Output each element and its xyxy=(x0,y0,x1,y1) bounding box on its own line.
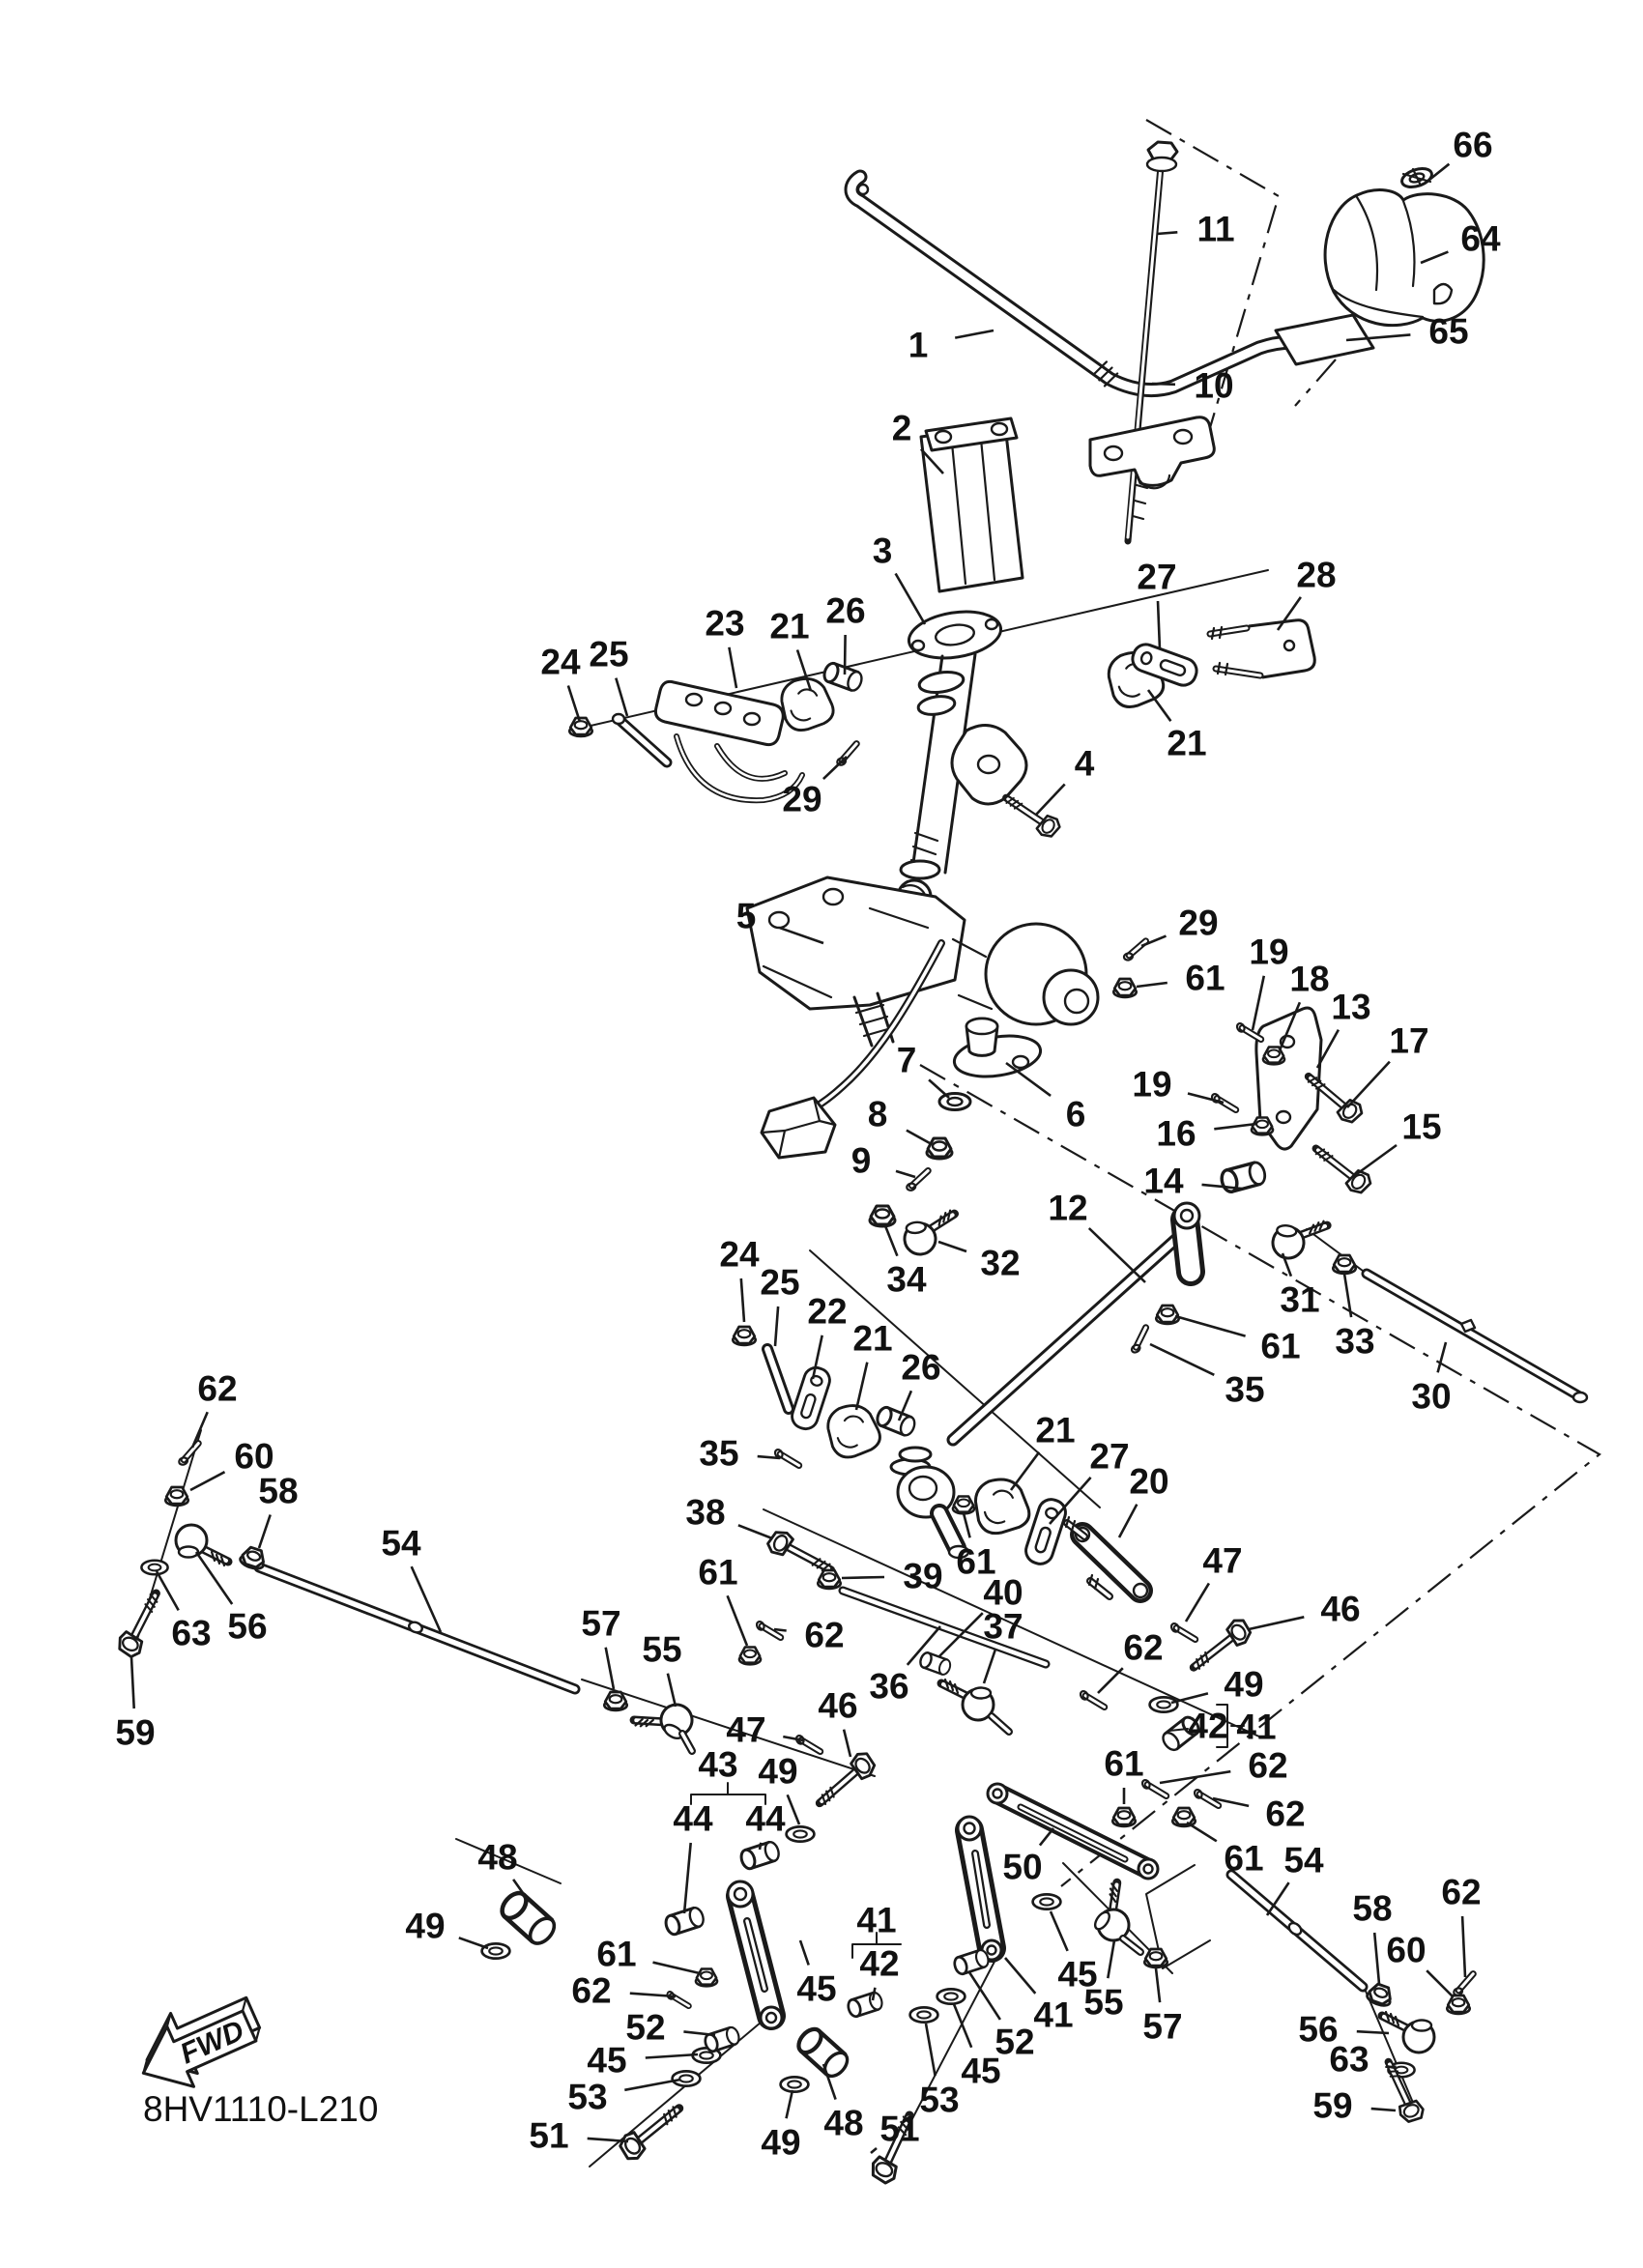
callout-31-39: 31 xyxy=(1280,1280,1319,1320)
leader-line-45 xyxy=(646,2054,698,2058)
callout-42-54: 42 xyxy=(859,1944,899,1984)
leader-line-19 xyxy=(1253,976,1264,1030)
callout-45-61: 45 xyxy=(796,1969,836,2009)
leader-line-26 xyxy=(845,635,846,675)
leader-line-63 xyxy=(157,1571,179,1610)
callout-61-99: 61 xyxy=(596,1935,636,1974)
steering-riser-and-stem xyxy=(833,418,1062,913)
fwd-arrow-icon: FWD xyxy=(126,1983,271,2104)
leader-line-49 xyxy=(788,1794,799,1824)
callout-33-41: 33 xyxy=(1335,1322,1374,1362)
leader-line-44 xyxy=(684,1843,691,1913)
callout-55-82: 55 xyxy=(1083,1983,1123,2023)
callout-61-96: 61 xyxy=(956,1542,995,1582)
leader-line-24 xyxy=(741,1278,744,1322)
callout-24-27: 24 xyxy=(540,643,581,682)
callout-12-11: 12 xyxy=(1048,1189,1087,1228)
callout-41-50: 41 xyxy=(1236,1708,1276,1747)
leader-line-10 xyxy=(1152,384,1175,385)
leader-line-44 xyxy=(760,1843,761,1850)
leader-line-25 xyxy=(616,678,627,716)
callout-2-1: 2 xyxy=(892,409,912,448)
callout-51-74: 51 xyxy=(879,2110,919,2149)
leader-line-34 xyxy=(884,1223,897,1256)
callout-5-4: 5 xyxy=(736,897,757,936)
callout-35-43: 35 xyxy=(699,1434,738,1474)
leader-line-38 xyxy=(738,1525,772,1538)
leader-line-11 xyxy=(1157,232,1177,234)
callout-22-25: 22 xyxy=(807,1292,847,1332)
leader-line-55 xyxy=(668,1674,676,1707)
callout-4-3: 4 xyxy=(1075,744,1095,784)
leader-line-62 xyxy=(774,1629,787,1631)
callout-56-83: 56 xyxy=(227,1607,267,1647)
callout-19-19: 19 xyxy=(1132,1065,1171,1105)
leader-line-23 xyxy=(729,647,736,688)
leader-line-61 xyxy=(1175,1316,1246,1336)
leader-line-53 xyxy=(624,2080,680,2090)
callout-41-52: 41 xyxy=(1033,1995,1073,2035)
callout-26-31: 26 xyxy=(825,591,865,631)
callout-54-79: 54 xyxy=(381,1524,421,1564)
callout-37-46: 37 xyxy=(983,1607,1023,1647)
callout-17-16: 17 xyxy=(1389,1021,1428,1061)
callout-32-40: 32 xyxy=(980,1244,1020,1283)
callout-61-94: 61 xyxy=(1260,1327,1300,1366)
callout-62-103: 62 xyxy=(1248,1746,1287,1786)
callout-62-102: 62 xyxy=(1123,1628,1163,1668)
callout-24-28: 24 xyxy=(719,1235,760,1275)
callout-59-89: 59 xyxy=(115,1713,155,1753)
handle-crown-parts xyxy=(1090,142,1484,541)
leader-line-8 xyxy=(907,1131,930,1143)
callout-44-57: 44 xyxy=(745,1799,786,1839)
callout-47-64: 47 xyxy=(726,1710,765,1750)
callout-15-14: 15 xyxy=(1401,1107,1441,1147)
leader-line-61 xyxy=(1187,1823,1217,1841)
callout-42-53: 42 xyxy=(1188,1707,1227,1746)
callout-27-34: 27 xyxy=(1089,1437,1129,1477)
callout-3-2: 3 xyxy=(873,531,893,571)
leader-line-49 xyxy=(459,1938,488,1948)
leader-line-27 xyxy=(1158,601,1160,649)
leader-line-16 xyxy=(1214,1124,1256,1129)
callout-7-6: 7 xyxy=(897,1041,917,1080)
callout-60-91: 60 xyxy=(234,1437,274,1477)
callout-21-22: 21 xyxy=(1167,724,1206,763)
callout-38-47: 38 xyxy=(685,1493,725,1533)
callout-19-18: 19 xyxy=(1249,933,1288,972)
callout-52-75: 52 xyxy=(625,2008,665,2048)
callout-39-48: 39 xyxy=(903,1557,942,1596)
leader-line-9 xyxy=(896,1171,915,1177)
callout-51-73: 51 xyxy=(529,2116,568,2156)
callout-21-23: 21 xyxy=(852,1319,892,1359)
callout-49-69: 49 xyxy=(405,1907,445,1946)
callout-9-8: 9 xyxy=(851,1141,872,1181)
callout-30-38: 30 xyxy=(1411,1377,1451,1417)
parts-diagram-canvas: FWD 8HV1110-L210 12345678910111213141516… xyxy=(0,0,1643,2268)
leader-line-51 xyxy=(871,2148,877,2153)
callout-57-85: 57 xyxy=(581,1604,620,1644)
leader-line-57 xyxy=(606,1648,614,1689)
callout-29-37: 29 xyxy=(1178,904,1218,943)
callout-60-92: 60 xyxy=(1386,1931,1426,1970)
leader-line-49 xyxy=(787,2090,793,2118)
callout-61-97: 61 xyxy=(1104,1744,1143,1784)
callout-41-51: 41 xyxy=(856,1901,896,1940)
leader-line-52 xyxy=(683,2031,715,2035)
leader-line-3 xyxy=(896,574,925,625)
callout-48-67: 48 xyxy=(823,2104,863,2143)
callout-53-78: 53 xyxy=(919,2081,959,2120)
callout-47-65: 47 xyxy=(1202,1541,1242,1581)
callout-46-63: 46 xyxy=(1320,1590,1360,1629)
leader-line-46 xyxy=(1249,1617,1304,1629)
callout-53-77: 53 xyxy=(567,2078,607,2117)
leader-line-61 xyxy=(1137,983,1167,987)
bracket-group xyxy=(1211,1008,1374,1197)
callout-48-66: 48 xyxy=(477,1838,517,1878)
leader-line-55 xyxy=(1108,1940,1114,1978)
callout-1-0: 1 xyxy=(908,326,929,365)
callout-58-87: 58 xyxy=(258,1472,298,1511)
leader-line-46 xyxy=(844,1730,850,1757)
callout-62-106: 62 xyxy=(1441,1873,1481,1912)
callout-61-93: 61 xyxy=(1185,959,1225,998)
callout-28-35: 28 xyxy=(1296,556,1336,595)
callout-63-108: 63 xyxy=(1329,2040,1369,2080)
leader-line-6 xyxy=(1006,1063,1051,1096)
leader-line-24 xyxy=(568,686,580,723)
part-code: 8HV1110-L210 xyxy=(143,2089,378,2129)
callout-11-10: 11 xyxy=(1196,210,1234,249)
callout-27-33: 27 xyxy=(1137,558,1176,597)
leader-line-62 xyxy=(630,1994,676,1996)
callout-49-68: 49 xyxy=(758,1752,797,1792)
leader-line-58 xyxy=(1374,1933,1379,1984)
leader-line-35 xyxy=(1150,1344,1214,1375)
callout-62-101: 62 xyxy=(804,1616,844,1655)
leader-line-29 xyxy=(823,757,847,779)
leader-line-30 xyxy=(1438,1342,1446,1372)
leader-line-61 xyxy=(653,1963,701,1973)
callout-61-95: 61 xyxy=(698,1553,737,1593)
leader-line-4 xyxy=(1036,785,1065,816)
leader-line-59 xyxy=(1371,2109,1396,2110)
leader-line-59 xyxy=(131,1657,134,1708)
callout-36-45: 36 xyxy=(869,1667,908,1707)
power-steering-unit xyxy=(747,861,1149,1191)
callout-58-88: 58 xyxy=(1352,1889,1392,1929)
callout-50-72: 50 xyxy=(1002,1848,1042,1887)
callout-23-26: 23 xyxy=(705,604,744,644)
callout-21-21: 21 xyxy=(769,607,809,646)
callout-66-111: 66 xyxy=(1453,126,1492,165)
leader-line-25 xyxy=(775,1306,778,1346)
callout-49-71: 49 xyxy=(1224,1665,1263,1705)
callout-49-70: 49 xyxy=(761,2123,800,2163)
callout-18-17: 18 xyxy=(1289,960,1329,999)
callout-59-90: 59 xyxy=(1312,2086,1352,2126)
leader-line-62 xyxy=(1160,1771,1230,1783)
callout-14-13: 14 xyxy=(1143,1162,1184,1201)
leader-line-53 xyxy=(926,2024,936,2076)
leader-line-15 xyxy=(1354,1145,1397,1176)
callout-62-104: 62 xyxy=(1265,1794,1305,1834)
leader-line-7 xyxy=(929,1079,949,1098)
callout-62-105: 62 xyxy=(571,1971,611,2011)
callout-6-5: 6 xyxy=(1066,1095,1086,1134)
callout-64-109: 64 xyxy=(1460,219,1501,259)
callout-65-110: 65 xyxy=(1428,312,1468,352)
callout-26-32: 26 xyxy=(901,1348,940,1388)
callout-35-44: 35 xyxy=(1225,1370,1264,1410)
callout-55-81: 55 xyxy=(642,1630,681,1670)
callout-21-24: 21 xyxy=(1035,1411,1075,1450)
callout-57-86: 57 xyxy=(1142,2007,1182,2047)
leader-line-61 xyxy=(728,1595,747,1646)
leader-line-21 xyxy=(1011,1452,1039,1490)
leader-line-1 xyxy=(955,330,994,338)
callout-44-56: 44 xyxy=(673,1799,713,1839)
callout-13-12: 13 xyxy=(1331,988,1370,1027)
callout-46-62: 46 xyxy=(818,1686,857,1726)
leader-line-50 xyxy=(1040,1828,1053,1846)
leader-line-37 xyxy=(984,1651,995,1684)
leader-line-62 xyxy=(1462,1916,1465,1977)
callout-25-29: 25 xyxy=(589,635,628,675)
leader-line-39 xyxy=(842,1577,884,1578)
leader-line-17 xyxy=(1347,1062,1390,1107)
leader-line-20 xyxy=(1119,1505,1137,1537)
leader-line-32 xyxy=(938,1242,966,1251)
callout-29-36: 29 xyxy=(782,780,821,819)
callout-54-80: 54 xyxy=(1283,1841,1324,1880)
callout-16-15: 16 xyxy=(1156,1114,1196,1154)
callout-63-107: 63 xyxy=(171,1614,211,1653)
callout-43-55: 43 xyxy=(698,1745,737,1785)
leader-line-62 xyxy=(1098,1668,1123,1693)
leader-line-45 xyxy=(800,1940,809,1966)
leader-line-60 xyxy=(1427,1970,1453,1996)
callout-61-98: 61 xyxy=(1224,1839,1263,1879)
callout-10-9: 10 xyxy=(1194,366,1233,406)
leader-line-60 xyxy=(190,1472,225,1490)
leader-line-47 xyxy=(1186,1583,1209,1622)
callout-20-20: 20 xyxy=(1129,1462,1168,1502)
leader-line-63 xyxy=(1386,2066,1396,2068)
leader-line-58 xyxy=(259,1515,271,1549)
callout-34-42: 34 xyxy=(886,1260,927,1300)
callout-25-30: 25 xyxy=(760,1263,799,1303)
leader-line-12 xyxy=(1089,1228,1145,1282)
leader-line-57 xyxy=(1156,1968,1160,2002)
callout-52-76: 52 xyxy=(994,2023,1034,2062)
callout-8-7: 8 xyxy=(868,1095,888,1134)
callout-45-60: 45 xyxy=(587,2041,626,2081)
callout-62-100: 62 xyxy=(197,1369,237,1409)
leader-line-61 xyxy=(964,1513,970,1537)
leader-line-41 xyxy=(1005,1958,1035,1994)
parts-diagram-page: FWD 8HV1110-L210 12345678910111213141516… xyxy=(0,0,1643,2268)
leader-line-21 xyxy=(856,1363,867,1410)
leader-line-56 xyxy=(1357,2031,1389,2033)
leader-line-45 xyxy=(1051,1911,1068,1951)
